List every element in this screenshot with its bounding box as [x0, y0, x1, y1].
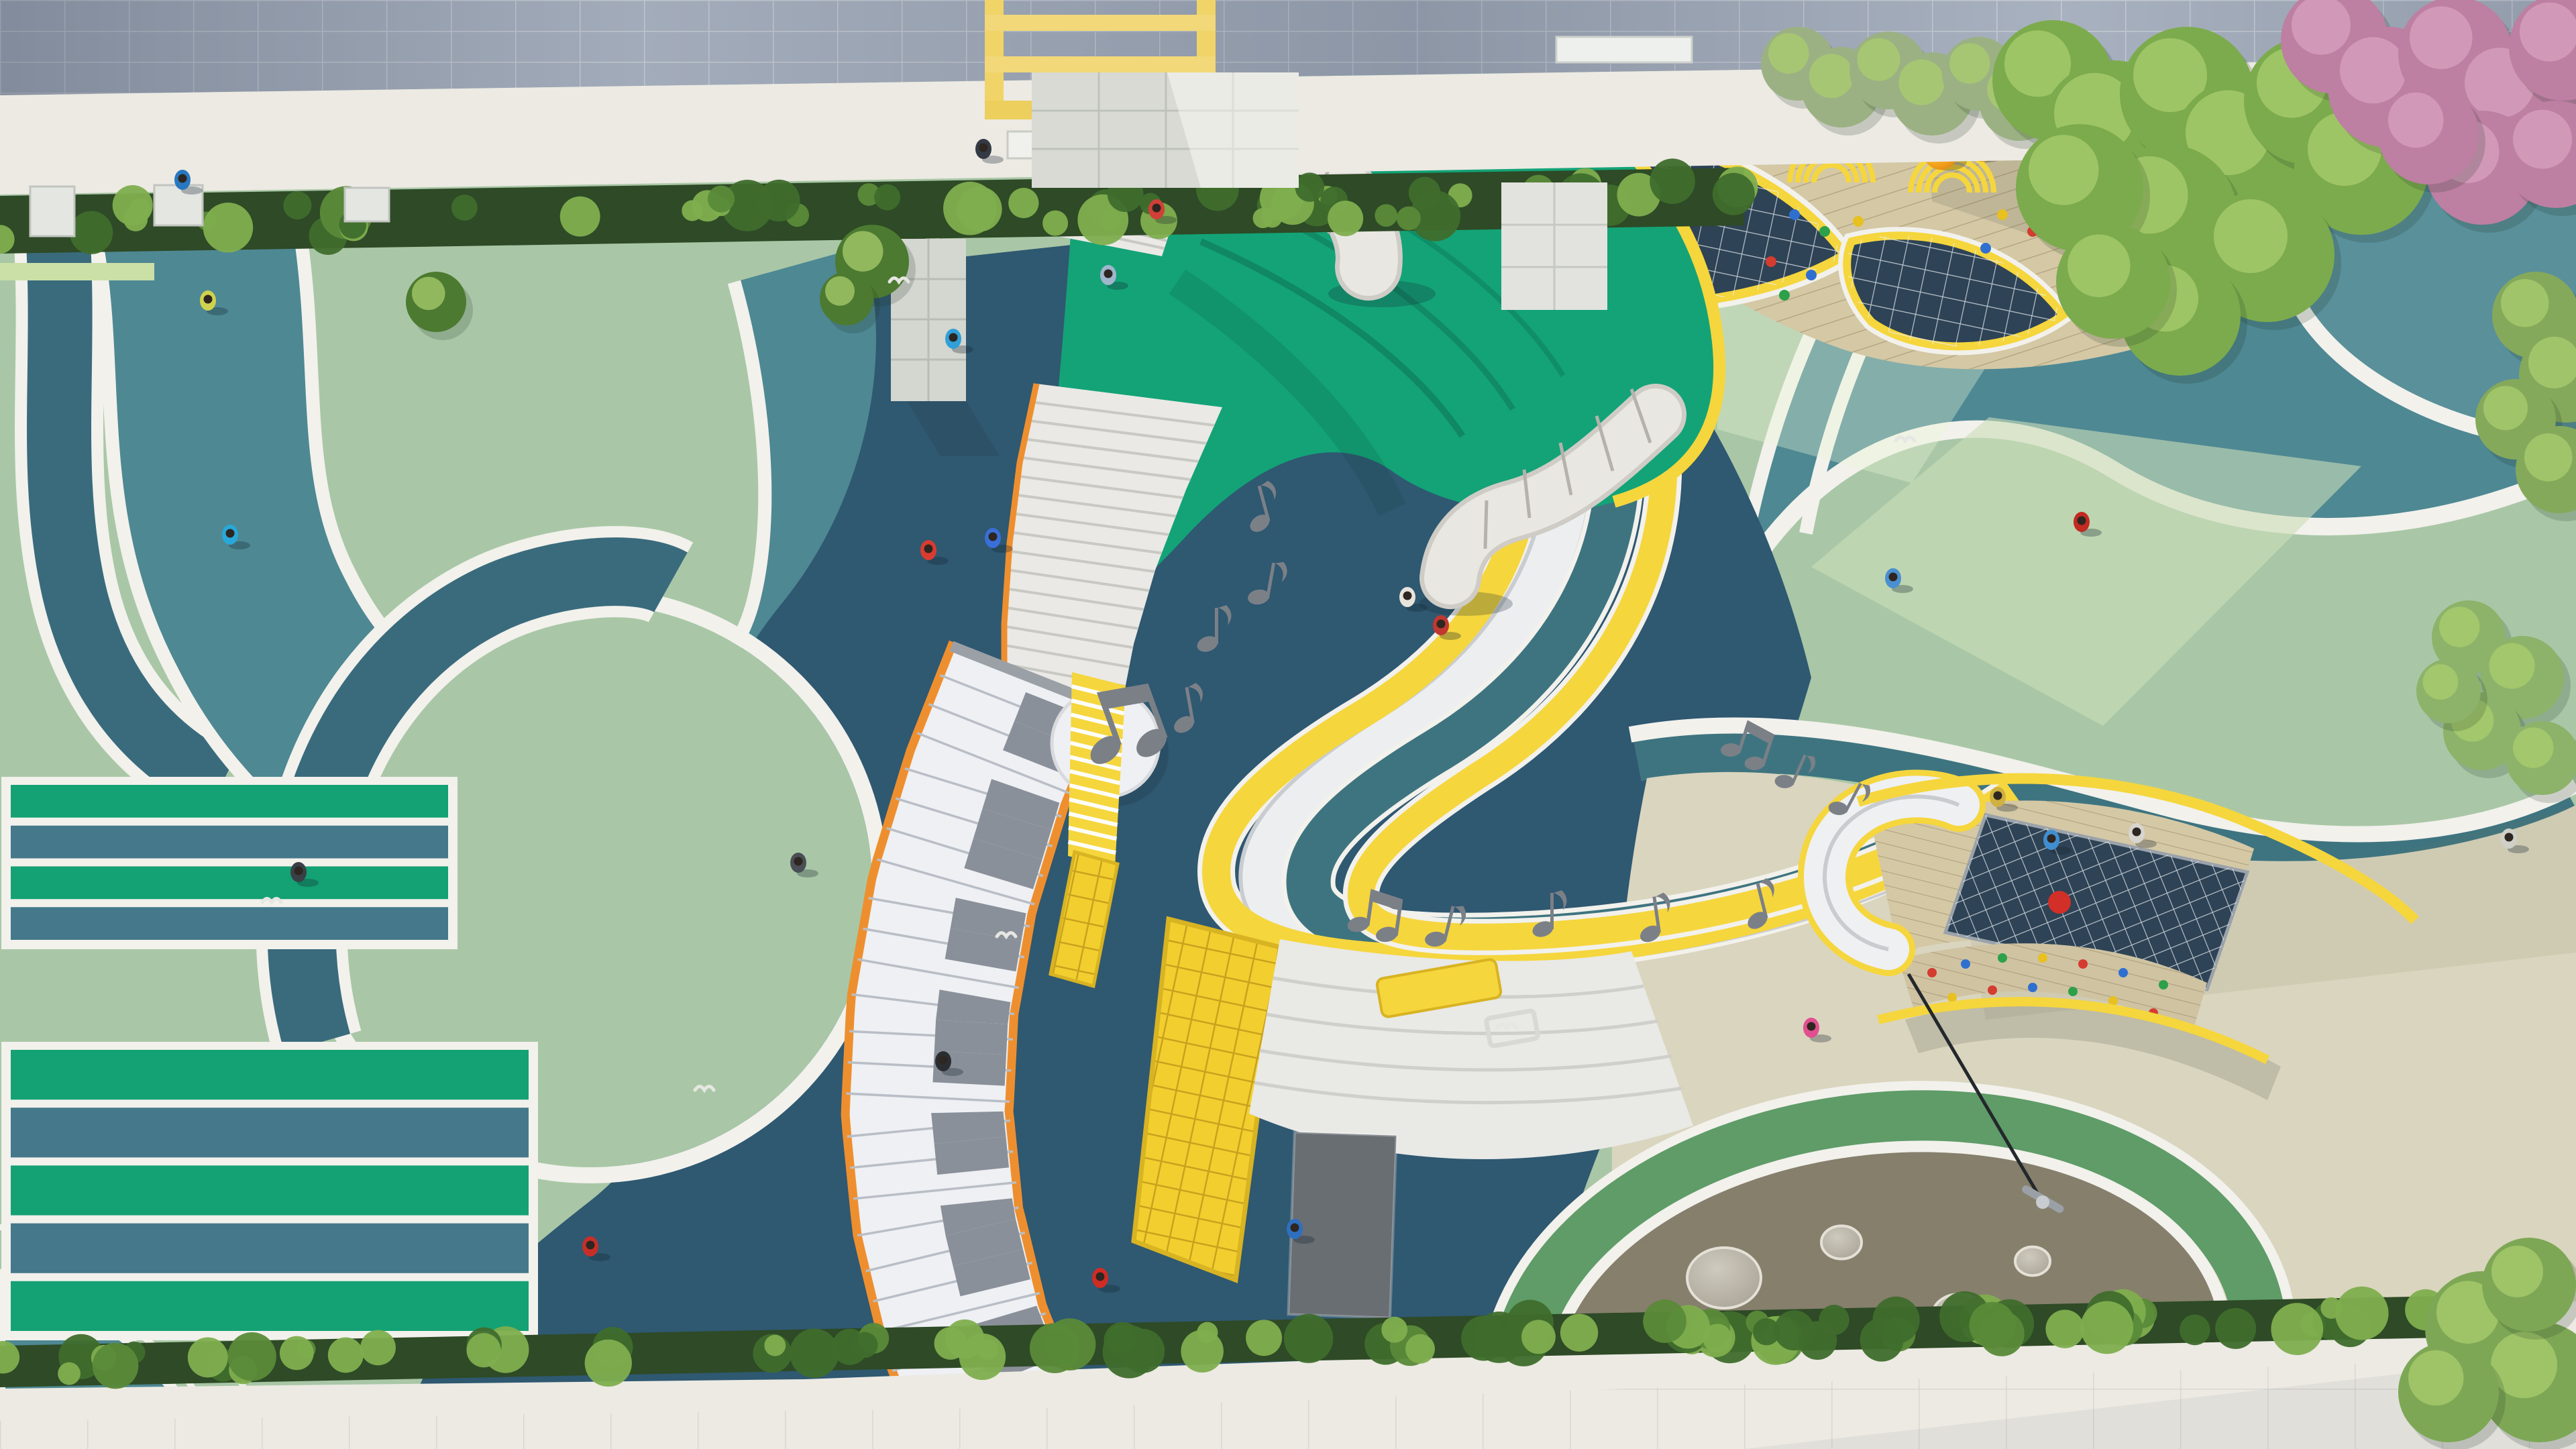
track-stripe: [11, 1165, 529, 1215]
wall-hold: [2038, 953, 2047, 963]
hedge-clump: [2271, 1303, 2323, 1355]
entry-column: [1501, 182, 1607, 310]
hedge-clump: [1253, 208, 1273, 228]
track-block-1: [1, 777, 458, 949]
pergola-bar-1: [985, 15, 1216, 31]
hedge-clump: [943, 182, 997, 235]
hedge-clump: [1650, 158, 1695, 204]
stepping-stone: [1687, 1248, 1761, 1308]
tree-canopy-highlight: [2501, 279, 2549, 327]
tree-canopy-highlight: [412, 277, 445, 311]
tree-canopy-highlight: [1768, 33, 1809, 74]
concrete-pad: [1288, 1132, 1396, 1318]
running-track-blocks: [1, 777, 538, 1340]
tree-canopy-highlight: [2439, 606, 2480, 647]
hedge-clump: [1405, 1334, 1435, 1364]
tree-canopy-highlight: [2491, 1246, 2543, 1297]
climb-peg: [1819, 226, 1830, 237]
hedge-clump: [1872, 1297, 1919, 1344]
person-head: [1807, 1022, 1816, 1031]
note-stem: [1215, 608, 1218, 644]
wall-hold: [2118, 968, 2128, 977]
person-head: [924, 545, 933, 553]
hedge-clump: [1643, 1299, 1686, 1343]
hedge-clump: [1103, 1326, 1156, 1379]
fan-steps: [1249, 939, 1693, 1159]
concrete-pad-body: [1288, 1132, 1396, 1318]
tree-canopy-highlight: [2483, 386, 2528, 430]
hedge-clump: [203, 203, 253, 252]
hedge-clump: [1295, 172, 1325, 202]
hedge-clump: [93, 1343, 139, 1389]
tree-canopy-highlight: [2388, 93, 2444, 148]
hedge-clump: [1042, 211, 1068, 236]
climb-peg: [1980, 243, 1991, 254]
wall-hold: [2068, 987, 2078, 996]
tree-canopy-highlight: [825, 276, 855, 306]
hedge-clump: [227, 1332, 276, 1381]
climb-peg: [1997, 209, 2008, 220]
hedge-clump: [790, 1329, 839, 1378]
hedge-clump: [1949, 1308, 1970, 1329]
hedge-clump: [2335, 1287, 2389, 1340]
wall-hold: [1961, 959, 1970, 969]
hedge-clump: [1008, 188, 1038, 218]
hedge-clump: [1375, 204, 1397, 227]
hedge-clump: [758, 180, 800, 221]
hedge-clump: [585, 1340, 632, 1387]
hedge-clump: [129, 198, 150, 219]
tree-canopy-highlight: [2423, 664, 2459, 700]
tree-canopy-highlight: [2408, 1350, 2464, 1406]
person-head: [1437, 620, 1446, 629]
hedge-clump: [283, 191, 311, 219]
climb-peg: [1779, 290, 1790, 301]
person-head: [2133, 828, 2141, 837]
person-head: [1104, 270, 1113, 278]
tree-canopy-highlight: [1809, 54, 1854, 98]
hedge-clump: [934, 1327, 967, 1360]
person-head: [2047, 835, 2056, 843]
climb-peg: [1766, 256, 1776, 267]
hedge-clump: [682, 200, 702, 221]
tree-canopy-highlight: [2068, 234, 2131, 297]
tree-canopy-highlight: [2410, 6, 2473, 69]
stepping-stone: [2015, 1247, 2050, 1276]
wall-hold: [1998, 953, 2007, 963]
tree-canopy-highlight: [2340, 37, 2406, 103]
climb-peg: [1806, 270, 1817, 280]
planter-box: [345, 188, 389, 221]
person-head: [1152, 204, 1161, 213]
track-stripe: [11, 907, 448, 940]
track-stripe: [11, 1281, 529, 1331]
hedge-clump: [70, 211, 113, 254]
hedge-clump: [1246, 1320, 1282, 1356]
hedge-clump: [280, 1336, 314, 1371]
wall-hold: [2159, 980, 2168, 989]
tree-canopy-highlight: [2520, 3, 2576, 62]
tree-canopy-highlight: [1858, 38, 1900, 81]
hedge-clump: [977, 1339, 998, 1360]
person-head: [1889, 573, 1898, 582]
wall-hold: [1927, 968, 1937, 977]
person-head: [979, 144, 988, 152]
hedge-clump: [2045, 1309, 2084, 1348]
hedge-clump: [1799, 1321, 1837, 1360]
person-head: [226, 529, 235, 538]
note-stem: [1550, 893, 1554, 929]
hedge-clump: [764, 1335, 786, 1356]
hedge-clump: [1381, 1317, 1407, 1343]
pale-strip: [0, 263, 154, 280]
hedge-clump: [1030, 1323, 1080, 1373]
person-head: [294, 867, 303, 875]
track-stripe: [11, 1224, 529, 1273]
person-head: [1403, 592, 1412, 600]
track-stripe: [11, 785, 448, 818]
person-head: [794, 857, 803, 866]
track-stripe: [11, 867, 448, 900]
person-head: [949, 333, 958, 342]
tree-canopy-highlight: [2524, 433, 2573, 482]
climb-peg: [1853, 216, 1864, 227]
hedge-clump: [2215, 1308, 2256, 1349]
tree-canopy-highlight: [1898, 60, 1944, 105]
wall-hold: [1988, 985, 1997, 995]
pergola-bar-2: [985, 56, 1216, 72]
hedge-clump: [560, 197, 600, 237]
tree-canopy-highlight: [2513, 110, 2572, 169]
hedge-clump: [1713, 173, 1755, 215]
hedge-clump: [1703, 1324, 1731, 1352]
hedge-clump: [708, 185, 735, 212]
climb-peg: [1789, 209, 1800, 220]
hedge-clump: [1970, 1302, 2016, 1348]
hedge-clump: [1284, 1314, 1333, 1363]
person-head: [1291, 1224, 1299, 1232]
track-stripe: [11, 1050, 529, 1099]
person-head: [939, 1056, 948, 1065]
stepping-stone: [1821, 1226, 1862, 1258]
person-head: [2505, 833, 2514, 842]
hedge-clump: [1521, 1320, 1556, 1354]
wall-hold: [2028, 983, 2037, 992]
tree-canopy-highlight: [2489, 643, 2534, 689]
person-head: [204, 295, 213, 304]
wall-hold: [2078, 959, 2088, 969]
playground-aerial-render: Aerial rendering of a music-themed child…: [0, 0, 2576, 1449]
hedge-clump: [1397, 207, 1421, 231]
hedge-clump: [451, 195, 478, 221]
track-stripe: [11, 826, 448, 859]
track-stripe: [11, 1108, 529, 1157]
hedge-clump: [188, 1338, 228, 1378]
tree-canopy-highlight: [2214, 199, 2288, 273]
planter-box: [30, 186, 74, 236]
person-head: [178, 174, 187, 183]
tree-canopy-highlight: [1949, 43, 1990, 84]
person-head: [2078, 517, 2086, 525]
hedge-clump: [1181, 1330, 1224, 1373]
hedge-clump: [852, 1332, 877, 1358]
sign-bar: [1556, 37, 1692, 62]
hedge-clump: [1560, 1313, 1598, 1351]
hedge-clump: [874, 184, 900, 211]
hedge-clump: [2080, 1301, 2133, 1354]
tree-canopy-highlight: [843, 231, 883, 272]
person-head: [1096, 1273, 1105, 1281]
tree-canopy-highlight: [2513, 727, 2554, 768]
person-head: [1994, 792, 2002, 800]
platform-under-pergola: [1032, 72, 1299, 188]
hedge-clump: [360, 1330, 396, 1366]
hedge-clump: [2180, 1315, 2210, 1346]
person-head: [586, 1241, 595, 1250]
net-red-disc: [2048, 891, 2071, 914]
hedge-clump: [466, 1333, 500, 1367]
piano-black-key: [934, 1020, 1008, 1055]
track-block-2: [1, 1042, 538, 1340]
zipline-ball: [2036, 1195, 2049, 1209]
hedge-clump: [328, 1337, 364, 1373]
hedge-clump: [1328, 201, 1363, 236]
tree-canopy-highlight: [2029, 135, 2099, 205]
hedge-clump: [58, 1362, 80, 1385]
person-head: [989, 533, 998, 541]
